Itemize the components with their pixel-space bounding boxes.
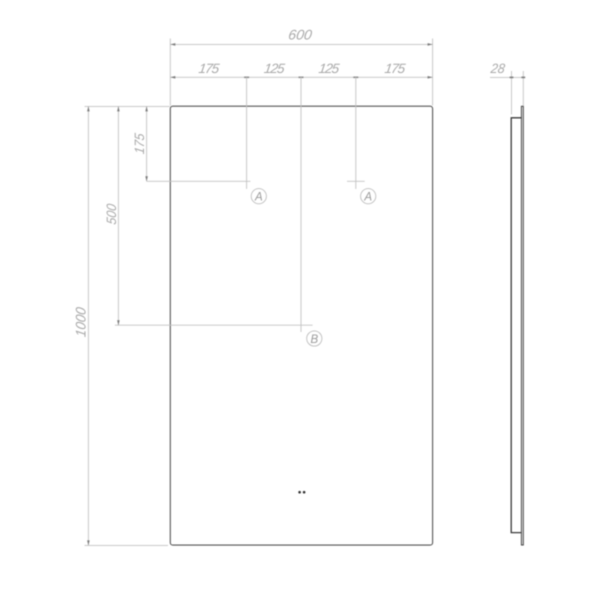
svg-text:B: B bbox=[310, 334, 318, 346]
svg-text:175: 175 bbox=[384, 61, 407, 76]
svg-text:1000: 1000 bbox=[73, 306, 89, 338]
svg-text:125: 125 bbox=[263, 61, 286, 76]
svg-text:A: A bbox=[363, 192, 372, 204]
svg-text:600: 600 bbox=[287, 26, 313, 42]
svg-text:175: 175 bbox=[132, 132, 147, 155]
svg-text:28: 28 bbox=[489, 61, 506, 76]
svg-text:125: 125 bbox=[318, 61, 341, 76]
svg-text:A: A bbox=[254, 192, 263, 204]
svg-text:500: 500 bbox=[104, 202, 119, 225]
svg-text:175: 175 bbox=[198, 61, 221, 76]
